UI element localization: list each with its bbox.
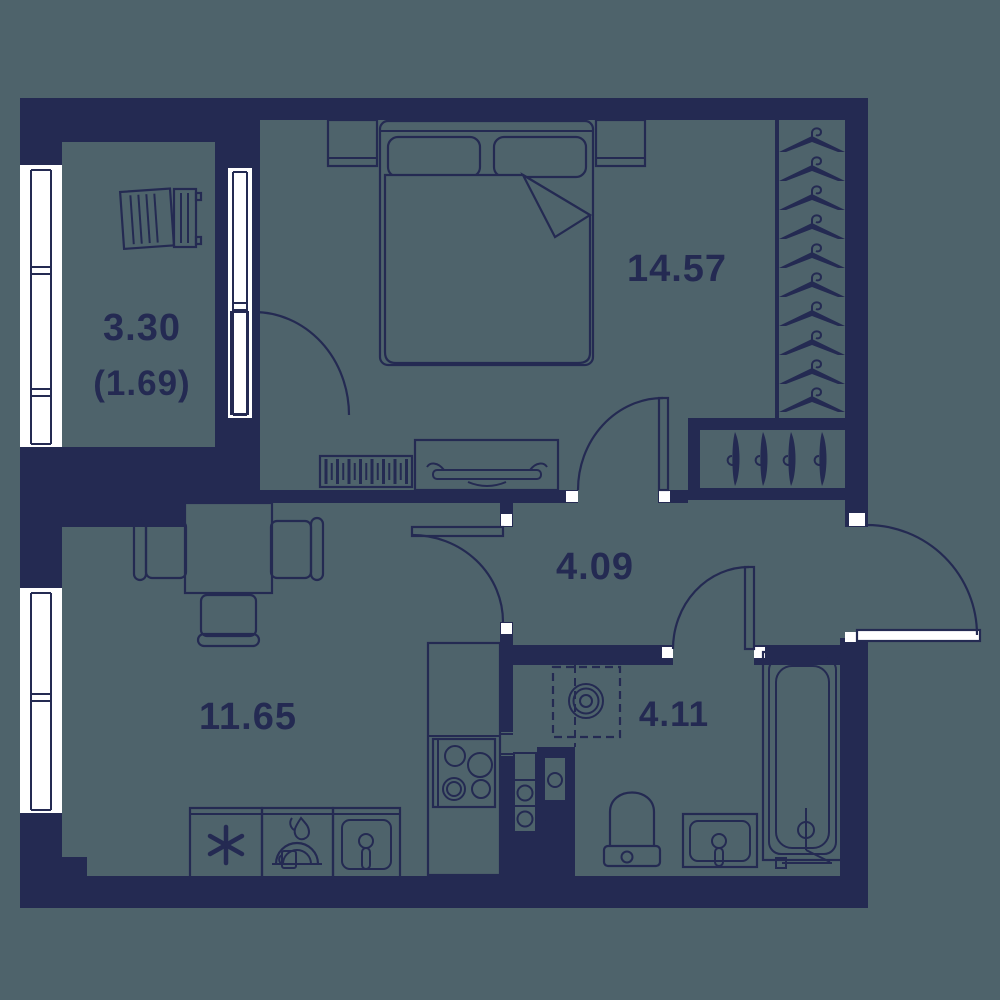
hall-area-label: 4.09 — [556, 546, 634, 588]
dining-table — [185, 503, 272, 593]
balcony-area-label: 3.30 — [103, 307, 181, 349]
living-area-label: 11.65 — [199, 696, 297, 738]
bedroom-area-label: 14.57 — [627, 248, 727, 290]
balcony-area-secondary-label: (1.69) — [93, 364, 190, 403]
floor-plan-svg: 3.30 (1.69) — [0, 0, 1000, 1000]
room-hall: 4.09 — [556, 546, 634, 588]
living-window — [20, 588, 62, 813]
balcony-window-left — [20, 165, 62, 447]
bathroom-area-label: 4.11 — [639, 695, 709, 734]
tv-stand — [415, 440, 558, 490]
floor-plan: 3.30 (1.69) — [0, 0, 1000, 1000]
